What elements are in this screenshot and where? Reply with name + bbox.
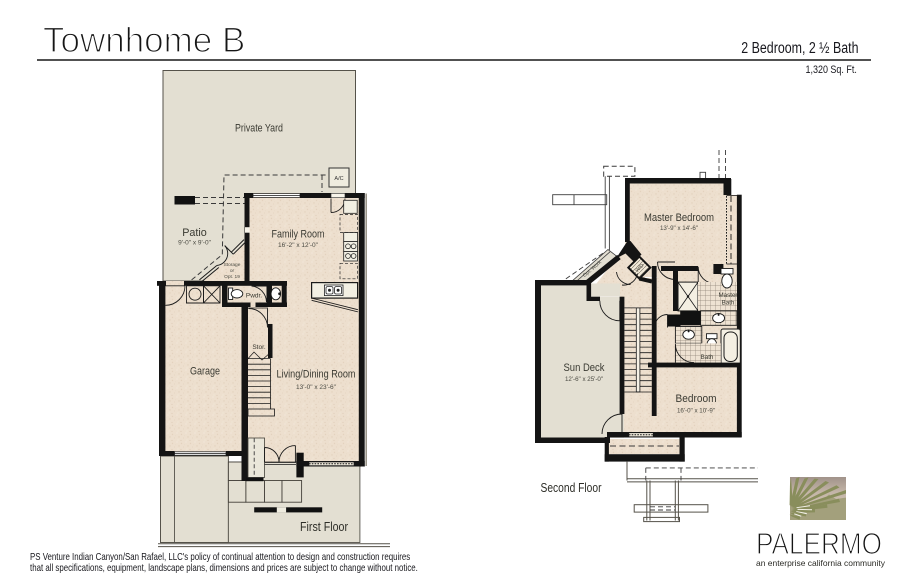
svg-text:Bedroom: Bedroom	[676, 393, 717, 405]
svg-text:13'-9" x 14'-6": 13'-9" x 14'-6"	[660, 225, 698, 232]
svg-text:Storage: Storage	[224, 262, 241, 268]
svg-text:Stor.: Stor.	[252, 344, 266, 351]
svg-text:16'-0" x 10'-9": 16'-0" x 10'-9"	[677, 408, 715, 415]
svg-text:Bath: Bath	[701, 354, 714, 361]
svg-text:Bath: Bath	[722, 300, 735, 307]
svg-text:Master: Master	[719, 292, 738, 299]
svg-text:Opt. 19: Opt. 19	[224, 274, 240, 280]
svg-text:First Floor: First Floor	[300, 520, 348, 534]
svg-text:Pwdr.: Pwdr.	[246, 293, 262, 300]
svg-text:13'-0" x 23'-6": 13'-0" x 23'-6"	[296, 384, 337, 391]
svg-text:Garage: Garage	[190, 366, 220, 378]
svg-text:9'-0" x 9'-0": 9'-0" x 9'-0"	[178, 240, 211, 247]
svg-text:Living/Dining Room: Living/Dining Room	[277, 369, 356, 381]
svg-text:Patio: Patio	[182, 227, 207, 239]
svg-text:or: or	[230, 268, 235, 274]
svg-text:16'-2" x 12'-0": 16'-2" x 12'-0"	[278, 242, 319, 249]
svg-text:A/C: A/C	[334, 176, 343, 182]
svg-text:Master Bedroom: Master Bedroom	[644, 212, 714, 224]
svg-text:Family Room: Family Room	[272, 229, 325, 241]
svg-text:Private Yard: Private Yard	[235, 123, 283, 135]
svg-text:Sun Deck: Sun Deck	[564, 362, 606, 374]
svg-text:Second Floor: Second Floor	[541, 481, 602, 495]
svg-text:PALERMO: PALERMO	[756, 526, 882, 561]
svg-text:an enterprise california commu: an enterprise california community	[756, 558, 886, 568]
svg-text:12'-6" x 25'-0": 12'-6" x 25'-0"	[565, 376, 603, 383]
